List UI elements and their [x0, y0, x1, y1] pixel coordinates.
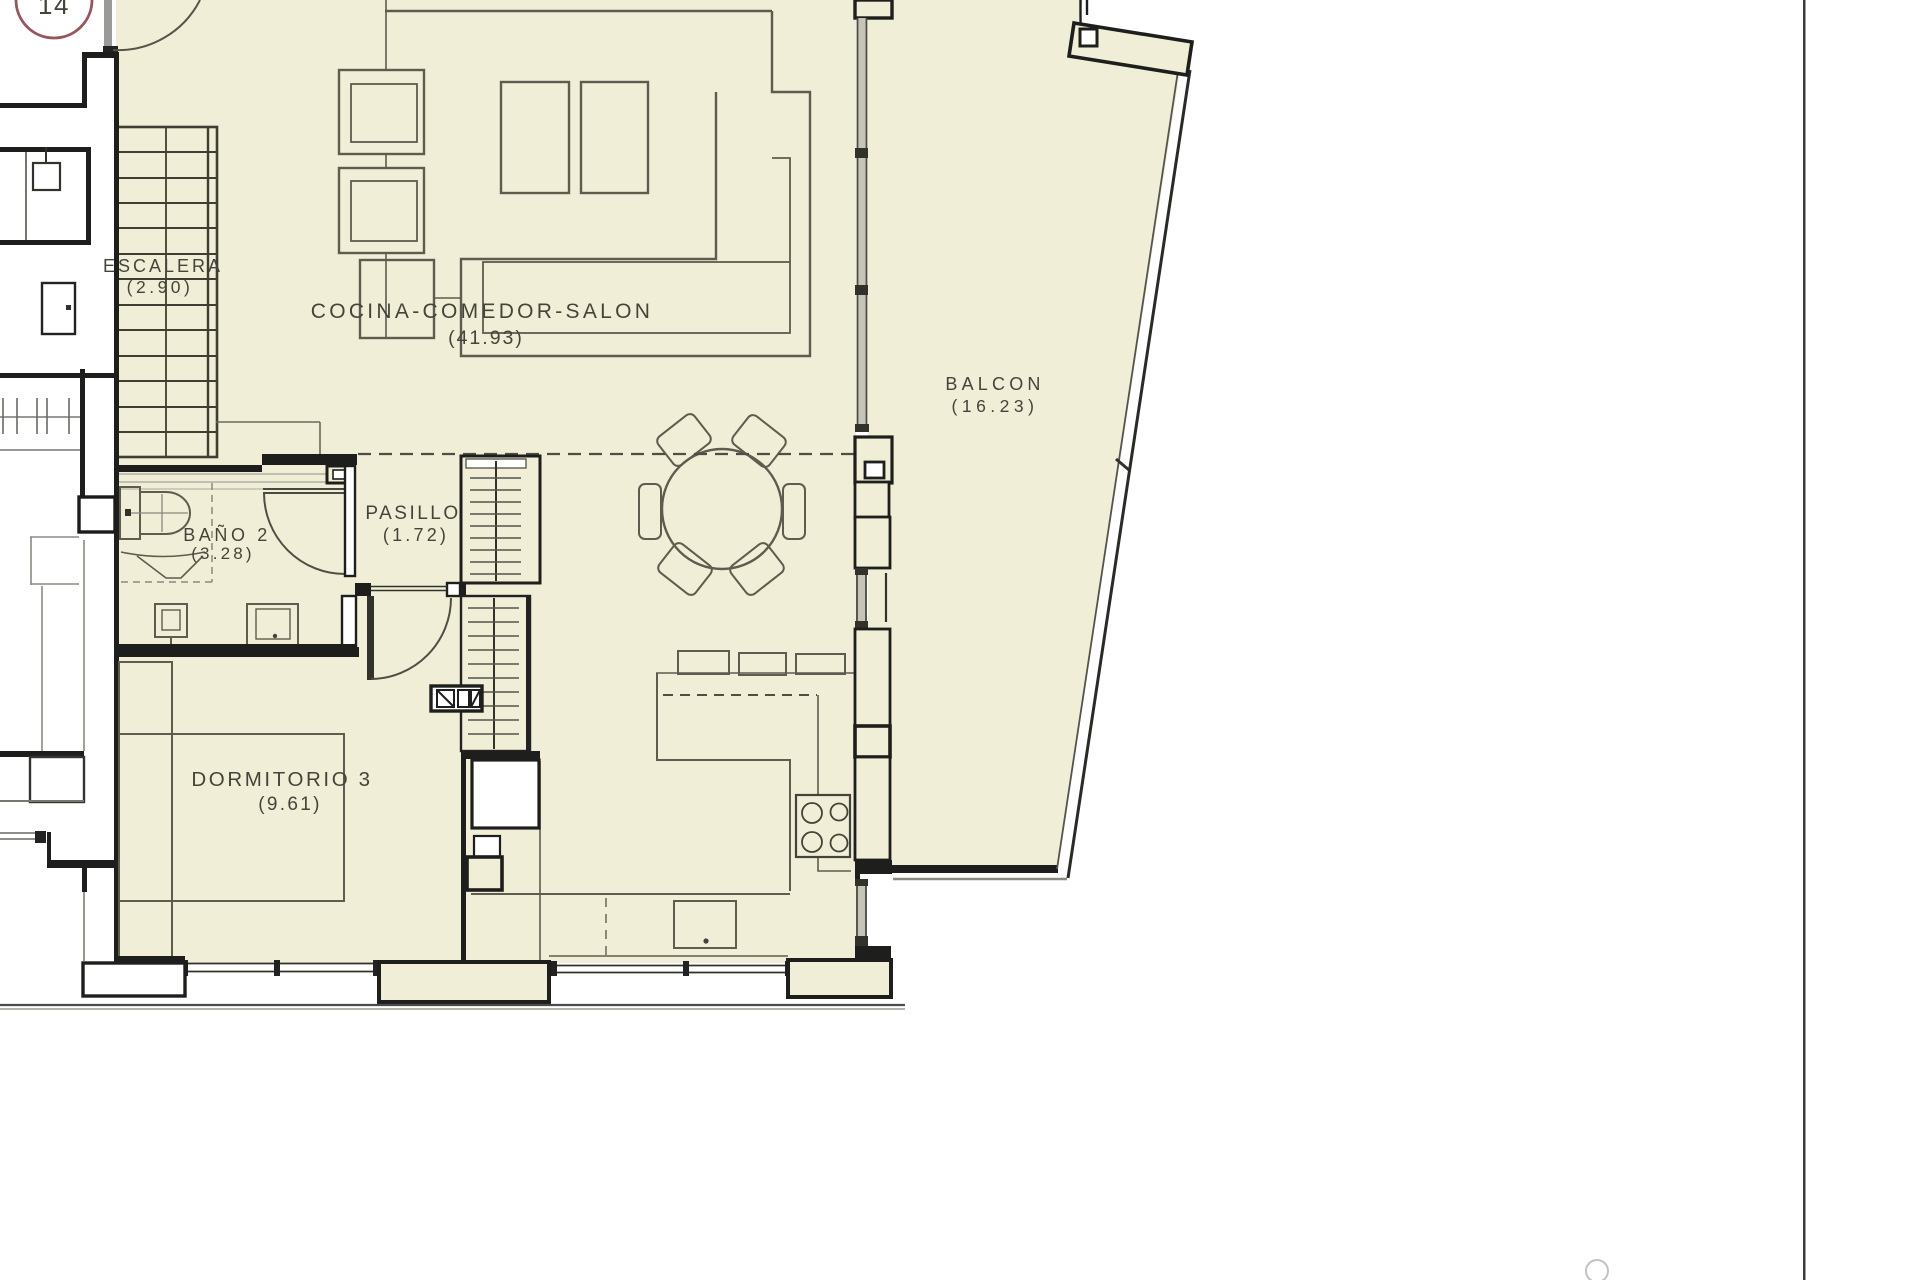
- svg-text:PASILLO: PASILLO: [365, 503, 460, 524]
- svg-text:BAÑO 2: BAÑO 2: [183, 524, 271, 545]
- svg-text:(3.28): (3.28): [191, 544, 255, 563]
- svg-text:DORMITORIO 3: DORMITORIO 3: [191, 768, 372, 791]
- svg-text:ESCALERA: ESCALERA: [103, 256, 223, 276]
- svg-text:(2.90): (2.90): [127, 277, 194, 297]
- svg-text:(16.23): (16.23): [952, 396, 1039, 416]
- svg-text:(1.72): (1.72): [383, 525, 449, 545]
- svg-text:(9.61): (9.61): [258, 794, 321, 815]
- svg-text:BALCON: BALCON: [945, 374, 1044, 394]
- svg-text:COCINA-COMEDOR-SALON: COCINA-COMEDOR-SALON: [311, 300, 654, 323]
- svg-text:14: 14: [38, 0, 70, 20]
- svg-text:(41.93): (41.93): [448, 327, 524, 349]
